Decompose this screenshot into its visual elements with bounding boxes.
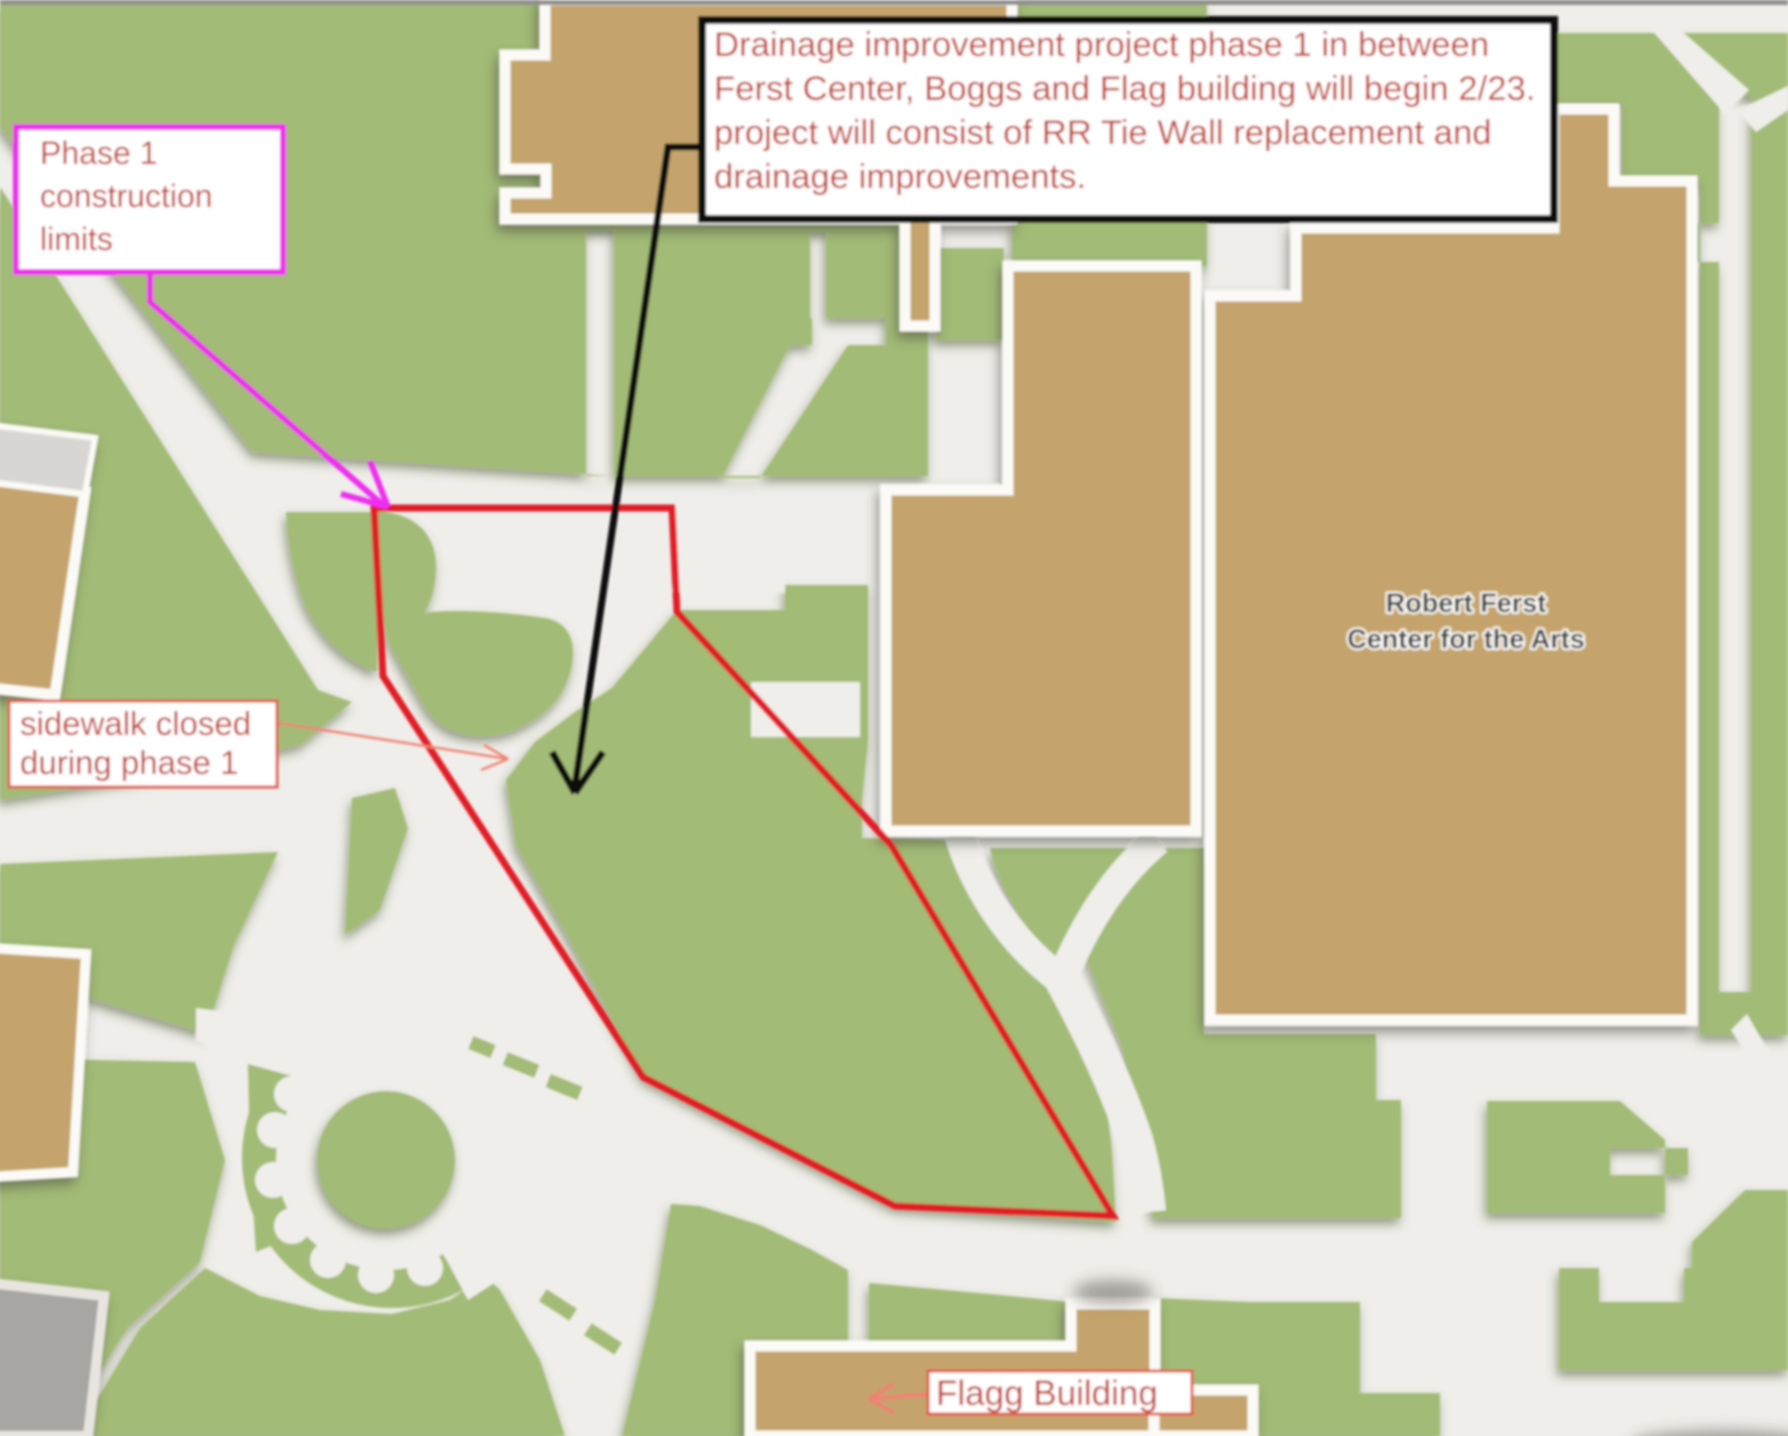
svg-text:construction: construction [40,178,213,214]
svg-text:during phase 1: during phase 1 [20,744,238,781]
svg-text:limits: limits [40,221,113,257]
svg-text:Center for the Arts: Center for the Arts [1347,624,1585,654]
svg-text:Phase 1: Phase 1 [40,135,157,171]
svg-text:Flagg Building: Flagg Building [936,1374,1158,1413]
svg-text:Drainage improvement project p: Drainage improvement project phase 1 in … [714,26,1489,64]
svg-text:Robert Ferst: Robert Ferst [1386,588,1547,618]
svg-text:sidewalk closed: sidewalk closed [20,705,251,742]
svg-text:project will consist of RR Tie: project will consist of RR Tie Wall repl… [714,114,1492,152]
svg-text:Ferst Center, Boggs and Flag b: Ferst Center, Boggs and Flag building wi… [714,70,1535,108]
svg-text:drainage improvements.: drainage improvements. [714,158,1086,196]
